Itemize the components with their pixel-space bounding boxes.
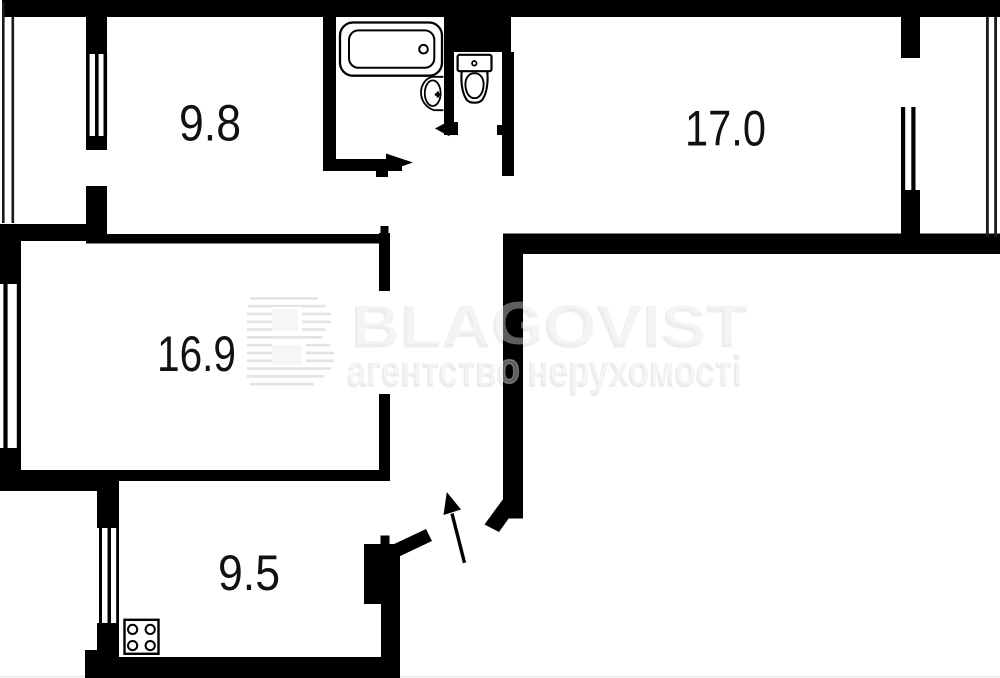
svg-text:агентство нерухомості: агентство нерухомості xyxy=(349,344,744,393)
svg-text:9.8: 9.8 xyxy=(179,95,241,152)
svg-text:16.9: 16.9 xyxy=(157,326,236,382)
svg-text:9.5: 9.5 xyxy=(218,545,280,601)
svg-text:17.0: 17.0 xyxy=(685,101,766,157)
